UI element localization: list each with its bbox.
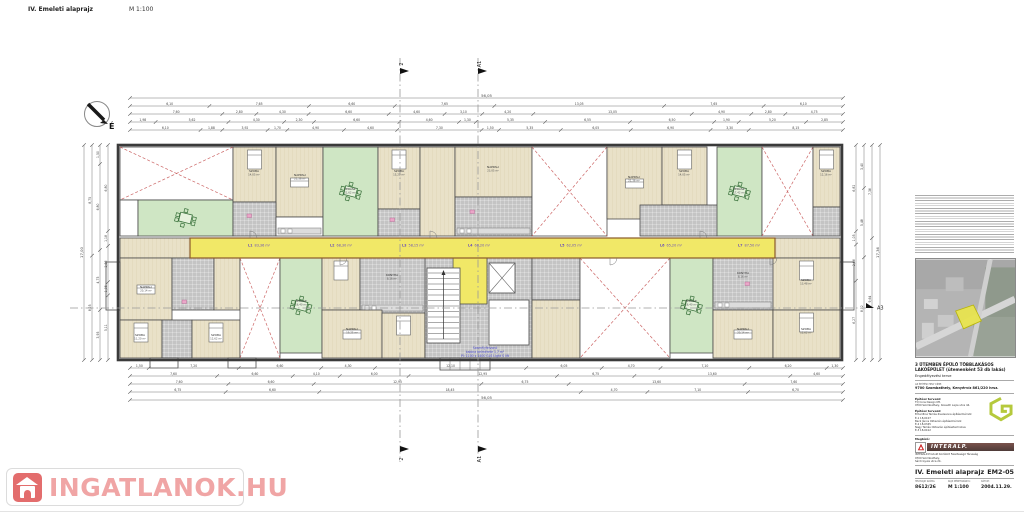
section-label: 2 bbox=[399, 457, 405, 460]
notes-textblock bbox=[915, 195, 1014, 255]
svg-text:13,60: 13,60 bbox=[652, 380, 661, 384]
room-label: SZOBA bbox=[249, 169, 259, 173]
svg-text:13,05: 13,05 bbox=[608, 110, 617, 114]
svg-text:7,65: 7,65 bbox=[256, 102, 263, 106]
parcel-label: HELYRAJZI SZÁMA: bbox=[915, 481, 948, 484]
elevator-note: Pl: 1100 x 1400 GLS Light S lift bbox=[461, 354, 510, 358]
room-area: 20,14 m² bbox=[737, 330, 749, 334]
svg-text:1,05: 1,05 bbox=[104, 285, 108, 292]
room-label: NAPPALI bbox=[487, 165, 499, 169]
title-block: 3 ÜTEMBEN ÉPÜLŐ TÖBBLAKÁSOS LAKÓÉPÜLET (… bbox=[915, 363, 1014, 490]
svg-text:2,80: 2,80 bbox=[765, 110, 772, 114]
scale-value: M 1:100 bbox=[948, 485, 981, 491]
date-column: DÁTUM: 2004.11.29. bbox=[981, 481, 1014, 490]
room-parquet bbox=[420, 147, 455, 236]
room-area: 17,42 m² bbox=[733, 190, 745, 194]
svg-text:4,60: 4,60 bbox=[813, 372, 820, 376]
svg-text:5,11: 5,11 bbox=[104, 324, 108, 331]
room-area: 14,05 m² bbox=[248, 172, 260, 176]
section-flag-bottom bbox=[400, 446, 409, 452]
corridor-label-L3: L358,15 m² bbox=[402, 244, 425, 248]
bed-icon bbox=[820, 150, 834, 169]
dimension-row-v: 17,36 bbox=[875, 143, 882, 362]
corridor-label-L6: L665,20 m² bbox=[660, 244, 683, 248]
house-icon bbox=[13, 473, 42, 502]
svg-text:6,05: 6,05 bbox=[561, 364, 568, 368]
svg-text:12,95: 12,95 bbox=[478, 372, 487, 376]
room-label: TERASZ bbox=[684, 299, 696, 303]
room-tile bbox=[532, 258, 580, 300]
scale-label: RAJZ MÉRETARÁNYA: bbox=[948, 481, 981, 484]
section-label: A1 bbox=[477, 61, 483, 68]
room-tile bbox=[378, 209, 420, 236]
parcel-number: 8612/26 bbox=[915, 485, 948, 491]
svg-text:1,30: 1,30 bbox=[464, 118, 471, 122]
svg-text:4,90: 4,90 bbox=[718, 110, 725, 114]
bed-icon bbox=[397, 316, 411, 335]
svg-text:4,75: 4,75 bbox=[811, 110, 818, 114]
ingatlanok-watermark: INGATLANOK.HU bbox=[6, 468, 244, 506]
svg-text:1,70: 1,70 bbox=[274, 126, 281, 130]
svg-text:2,80: 2,80 bbox=[236, 110, 243, 114]
corridor bbox=[190, 238, 775, 258]
scale-column: RAJZ MÉRETARÁNYA: M 1:100 bbox=[948, 481, 981, 490]
dimension-row-v: 17,00 bbox=[79, 143, 86, 362]
north-arrow-icon: É bbox=[85, 102, 115, 132]
fixture-accent bbox=[470, 210, 475, 214]
svg-text:2,86: 2,86 bbox=[852, 259, 856, 266]
svg-text:1,50: 1,50 bbox=[136, 364, 143, 368]
room-white bbox=[489, 300, 529, 345]
svg-text:7,10: 7,10 bbox=[701, 364, 708, 368]
dimension-row-h: 1,985,624,302,306,604,601,305,356,556,50… bbox=[128, 118, 845, 124]
room-tile bbox=[640, 205, 717, 236]
svg-text:4,20: 4,20 bbox=[504, 110, 511, 114]
svg-text:56,05: 56,05 bbox=[481, 93, 492, 98]
svg-text:7,65: 7,65 bbox=[710, 102, 717, 106]
room-tile bbox=[713, 258, 773, 310]
svg-text:5,20: 5,20 bbox=[769, 118, 776, 122]
svg-text:5,48: 5,48 bbox=[860, 219, 864, 226]
dimension-row-v: 3,405,488,12 bbox=[860, 143, 866, 362]
room-parquet bbox=[276, 147, 323, 217]
room-parquet bbox=[378, 147, 420, 209]
room-area: 13,48 m² bbox=[800, 281, 812, 285]
svg-text:6,60: 6,60 bbox=[353, 118, 360, 122]
svg-text:4,60: 4,60 bbox=[413, 110, 420, 114]
project-title: 3 ÜTEMBEN ÉPÜLŐ TÖBBLAKÁSOS LAKÓÉPÜLET (… bbox=[915, 363, 1014, 373]
section-flag-bottom bbox=[478, 446, 487, 452]
svg-text:7,60: 7,60 bbox=[173, 110, 180, 114]
room-label: TERASZ bbox=[732, 187, 744, 191]
parcel-column: HELYRAJZI SZÁMA: 8612/26 bbox=[915, 481, 948, 490]
section-flag-top bbox=[478, 68, 487, 74]
drawing-title-row: IV. Emeleti alaprajz EM2-05 bbox=[915, 468, 1014, 476]
svg-text:1,18: 1,18 bbox=[104, 235, 108, 242]
red-triangle-icon bbox=[917, 443, 925, 451]
svg-text:12,10: 12,10 bbox=[446, 364, 455, 368]
watermark-text: INGATLANOK.HU bbox=[49, 473, 288, 502]
dimension-row-h: 6,756,6018,454,707,106,70 bbox=[128, 388, 845, 394]
staff2-license: É-3 18-0412 bbox=[915, 429, 972, 432]
drawing-number: EM2-05 bbox=[987, 468, 1014, 476]
plan-sheet: IV. Emeleti alaprajz M 1:100 56,056,107,… bbox=[0, 0, 1024, 512]
svg-text:13,05: 13,05 bbox=[575, 102, 584, 106]
svg-text:4,60: 4,60 bbox=[426, 118, 433, 122]
room-parquet bbox=[214, 258, 240, 310]
svg-text:6,80: 6,80 bbox=[104, 185, 108, 192]
room-area: 12,62 m² bbox=[800, 330, 812, 334]
svg-text:2,85: 2,85 bbox=[821, 118, 828, 122]
dimension-row-h: 6,107,656,607,6513,057,656,10 bbox=[128, 102, 845, 108]
svg-text:1,88: 1,88 bbox=[208, 126, 215, 130]
room-label: NAPPALI bbox=[346, 327, 358, 331]
svg-text:6,80: 6,80 bbox=[96, 203, 100, 210]
dimension-row-v: 8,758,25 bbox=[88, 143, 94, 362]
svg-text:2,30: 2,30 bbox=[296, 118, 303, 122]
room-parquet bbox=[532, 300, 580, 358]
svg-text:13,60: 13,60 bbox=[708, 372, 717, 376]
svg-text:5,35: 5,35 bbox=[526, 126, 533, 130]
svg-text:3,95: 3,95 bbox=[96, 332, 100, 339]
svg-text:17,00: 17,00 bbox=[79, 246, 84, 257]
svg-text:4,60: 4,60 bbox=[367, 126, 374, 130]
dimension-row-h: 7,602,804,306,604,603,104,2013,054,902,8… bbox=[128, 110, 845, 116]
svg-text:1,50: 1,50 bbox=[96, 151, 100, 158]
kitchen-counter-icon bbox=[278, 228, 321, 234]
svg-text:6,10: 6,10 bbox=[166, 102, 173, 106]
svg-text:1,30: 1,30 bbox=[831, 364, 838, 368]
section-label-a3: A3 bbox=[877, 306, 884, 312]
designers: Építész tervező: TQ Cons Design Kft. 970… bbox=[915, 396, 972, 433]
fixture-accent bbox=[390, 218, 395, 222]
svg-text:5,62: 5,62 bbox=[189, 118, 196, 122]
svg-text:1,05: 1,05 bbox=[852, 234, 856, 241]
svg-text:6,10: 6,10 bbox=[162, 126, 169, 130]
svg-text:4,10: 4,10 bbox=[313, 372, 320, 376]
svg-text:6,10: 6,10 bbox=[800, 102, 807, 106]
dimension-row-v: 6,801,182,861,055,11 bbox=[104, 143, 110, 362]
room-label: NAPPALI bbox=[737, 327, 749, 331]
svg-text:4,30: 4,30 bbox=[345, 364, 352, 368]
room-parquet bbox=[322, 258, 360, 310]
svg-text:3,40: 3,40 bbox=[860, 163, 864, 170]
fixture-accent bbox=[745, 282, 750, 286]
room-area: 12,62 m² bbox=[210, 336, 222, 340]
room-label: NAPPALI bbox=[140, 285, 152, 289]
room-label: SZOBA bbox=[801, 327, 811, 331]
svg-text:3,30: 3,30 bbox=[726, 126, 733, 130]
room-label: TERASZ bbox=[343, 187, 355, 191]
svg-text:6,27: 6,27 bbox=[852, 317, 856, 324]
room-area: 19,25 m² bbox=[346, 330, 358, 334]
room-area: 21,62 m² bbox=[344, 190, 356, 194]
svg-text:7,60: 7,60 bbox=[176, 380, 183, 384]
svg-text:6,00: 6,00 bbox=[371, 372, 378, 376]
svg-text:2,86: 2,86 bbox=[104, 261, 108, 268]
section-flag-top bbox=[400, 68, 409, 74]
client-logo-text: INTERALP. bbox=[927, 443, 1014, 451]
bed-icon bbox=[678, 150, 692, 169]
client-label: Megbízó: bbox=[915, 438, 1014, 442]
svg-text:4,30: 4,30 bbox=[279, 110, 286, 114]
room-tile bbox=[162, 320, 192, 358]
room-tile bbox=[455, 197, 532, 236]
section-flag-right bbox=[866, 303, 874, 308]
floor-plan-svg: 56,056,107,656,607,6513,057,656,107,602,… bbox=[0, 0, 1024, 511]
svg-text:12,95: 12,95 bbox=[393, 380, 402, 384]
corridor-label-L5: L562,05 m² bbox=[560, 244, 583, 248]
svg-text:8,15: 8,15 bbox=[792, 126, 799, 130]
room-label: SZOBA bbox=[394, 169, 404, 173]
room-tile bbox=[233, 202, 276, 236]
bed-icon bbox=[334, 261, 348, 280]
svg-text:4,30: 4,30 bbox=[253, 118, 260, 122]
svg-text:7,20: 7,20 bbox=[190, 364, 197, 368]
dimension-row-h: 6,101,883,921,704,904,607,301,505,356,05… bbox=[128, 126, 845, 132]
section-label: 2 bbox=[399, 62, 405, 65]
site-address: 9700 Szombathely, Kenyérvíz 861/220 hrsz… bbox=[915, 386, 1014, 390]
room-label: SZOBA bbox=[135, 333, 145, 337]
svg-text:6,20: 6,20 bbox=[785, 364, 792, 368]
svg-text:8,12: 8,12 bbox=[860, 305, 864, 312]
svg-text:6,60: 6,60 bbox=[277, 364, 284, 368]
svg-text:1,98: 1,98 bbox=[139, 118, 146, 122]
svg-text:8,75: 8,75 bbox=[88, 197, 92, 204]
room-area: 21,36 m² bbox=[294, 176, 306, 180]
svg-text:6,60: 6,60 bbox=[348, 102, 355, 106]
svg-text:6,60: 6,60 bbox=[345, 110, 352, 114]
room-area: 15,20 m² bbox=[393, 172, 405, 176]
dimension-row-h: 56,05 bbox=[128, 395, 845, 402]
svg-text:4,70: 4,70 bbox=[628, 364, 635, 368]
svg-text:6,60: 6,60 bbox=[269, 388, 276, 392]
svg-text:7,10: 7,10 bbox=[694, 388, 701, 392]
dimension-row-v: 6,821,052,866,27 bbox=[852, 143, 858, 362]
client-logo-icon bbox=[915, 442, 926, 453]
svg-text:9,64: 9,64 bbox=[868, 296, 872, 303]
svg-text:3,92: 3,92 bbox=[242, 126, 249, 130]
room-area: 11,20 m² bbox=[134, 336, 146, 340]
room-white bbox=[120, 200, 138, 236]
kitchen-counter-icon bbox=[715, 302, 771, 308]
svg-text:1,90: 1,90 bbox=[723, 118, 730, 122]
kitchen-counter-icon bbox=[457, 228, 530, 234]
room-parquet bbox=[813, 147, 840, 207]
svg-text:4,90: 4,90 bbox=[312, 126, 319, 130]
room-area: 14,05 m² bbox=[678, 172, 690, 176]
titleblock-columns: HELYRAJZI SZÁMA: 8612/26 RAJZ MÉRETARÁNY… bbox=[915, 481, 1014, 490]
room-label: SZOBA bbox=[679, 169, 689, 173]
room-label: KONYHA bbox=[386, 273, 398, 277]
client-street: Sárdi Gyula utca 24. bbox=[915, 460, 1014, 463]
svg-text:6,75: 6,75 bbox=[174, 388, 181, 392]
bed-icon bbox=[392, 150, 406, 169]
room-area: 23,05 m² bbox=[487, 168, 499, 172]
room-parquet bbox=[382, 313, 425, 358]
architect-firm-logo-icon bbox=[988, 396, 1014, 422]
dimension-row-v: 1,506,804,753,95 bbox=[96, 143, 102, 362]
corridor-label-L1: L183,36 m² bbox=[248, 244, 271, 248]
svg-text:7,30: 7,30 bbox=[436, 126, 443, 130]
svg-text:56,05: 56,05 bbox=[481, 395, 492, 400]
svg-text:6,90: 6,90 bbox=[667, 126, 674, 130]
svg-text:7,60: 7,60 bbox=[170, 372, 177, 376]
right-panel: 3 ÜTEMBEN ÉPÜLŐ TÖBBLAKÁSOS LAKÓÉPÜLET (… bbox=[915, 195, 1016, 490]
room-roof bbox=[120, 147, 233, 200]
room-parquet bbox=[775, 238, 840, 258]
room-area: 16,40 m² bbox=[685, 302, 697, 306]
svg-text:6,55: 6,55 bbox=[584, 118, 591, 122]
svg-text:1,50: 1,50 bbox=[487, 126, 494, 130]
svg-text:17,36: 17,36 bbox=[875, 246, 880, 257]
room-label: SZOBA bbox=[821, 169, 831, 173]
dimension-row-v: 7,369,64 bbox=[868, 143, 874, 362]
room-label: TERASZ bbox=[294, 299, 306, 303]
svg-text:6,75: 6,75 bbox=[522, 380, 529, 384]
north-label: É bbox=[109, 120, 114, 131]
svg-text:6,05: 6,05 bbox=[592, 126, 599, 130]
room-area: 8,16 m² bbox=[738, 274, 748, 278]
svg-text:6,75: 6,75 bbox=[592, 372, 599, 376]
svg-text:7,36: 7,36 bbox=[868, 188, 872, 195]
room-label: SZOBA bbox=[801, 278, 811, 282]
room-area: 20,14 m² bbox=[140, 288, 152, 292]
date-label: DÁTUM: bbox=[981, 481, 1014, 484]
svg-text:6,82: 6,82 bbox=[852, 185, 856, 192]
room-area: 8,16 m² bbox=[387, 276, 397, 280]
svg-text:6,60: 6,60 bbox=[252, 372, 259, 376]
client-logo: INTERALP. bbox=[915, 443, 1014, 452]
corridor-label-L2: L268,30 m² bbox=[330, 244, 353, 248]
dimension-row-h: 7,606,6012,956,7513,607,60 bbox=[128, 380, 845, 386]
room-parquet bbox=[120, 238, 190, 258]
room-terrace bbox=[138, 200, 233, 236]
date-value: 2004.11.29. bbox=[981, 485, 1014, 491]
svg-text:3,10: 3,10 bbox=[460, 110, 467, 114]
architect1-address: 9700 Szombathely, Kossuth Lajos utca 44. bbox=[915, 404, 972, 407]
room-white bbox=[427, 268, 460, 343]
svg-text:7,65: 7,65 bbox=[441, 102, 448, 106]
dimension-row-h: 7,606,604,106,0012,956,7513,604,60 bbox=[128, 372, 845, 378]
svg-text:18,45: 18,45 bbox=[446, 388, 455, 392]
svg-text:5,35: 5,35 bbox=[507, 118, 514, 122]
svg-text:4,70: 4,70 bbox=[611, 388, 618, 392]
room-area: 12,16 m² bbox=[820, 172, 832, 176]
room-roof bbox=[532, 147, 607, 236]
site-map-image bbox=[915, 258, 1016, 358]
room-area: 21,36 m² bbox=[628, 178, 640, 182]
room-label: NAPPALI bbox=[628, 175, 640, 179]
svg-text:6,50: 6,50 bbox=[669, 118, 676, 122]
svg-text:4,75: 4,75 bbox=[96, 277, 100, 284]
bed-icon bbox=[248, 150, 262, 169]
room-roof bbox=[762, 147, 813, 236]
svg-text:7,60: 7,60 bbox=[790, 380, 797, 384]
room-white bbox=[276, 217, 323, 236]
drawing-title: IV. Emeleti alaprajz bbox=[915, 468, 984, 476]
fixture-accent bbox=[247, 214, 252, 218]
room-label: SZOBA bbox=[211, 333, 221, 337]
room-tile bbox=[360, 258, 425, 313]
room-area: 16,40 m² bbox=[295, 302, 307, 306]
room-label: NAPPALI bbox=[294, 173, 306, 177]
room-label: KONYHA bbox=[737, 271, 749, 275]
project-subtitle: Engedélyezési terve bbox=[915, 374, 1014, 378]
dimension-row-h: 56,05 bbox=[128, 93, 845, 100]
room-white bbox=[489, 263, 515, 293]
room-tile bbox=[172, 258, 214, 310]
room-tile bbox=[813, 207, 840, 236]
section-label: A1 bbox=[477, 456, 483, 463]
fixture-accent bbox=[182, 300, 187, 304]
svg-text:6,70: 6,70 bbox=[792, 388, 799, 392]
corridor-label-L7: L787,50 m² bbox=[738, 244, 761, 248]
svg-text:6,60: 6,60 bbox=[268, 380, 275, 384]
corridor-label-L4: L460,20 m² bbox=[468, 244, 491, 248]
